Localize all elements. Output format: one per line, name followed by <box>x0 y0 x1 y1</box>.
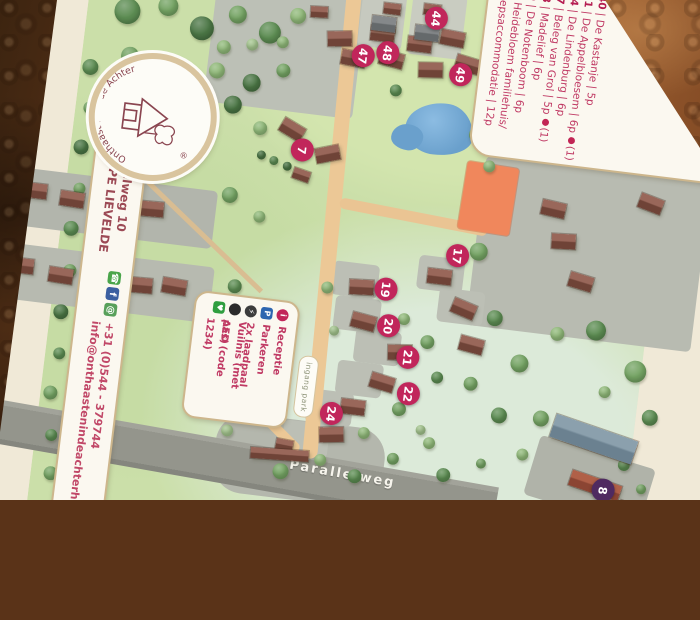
house-icon <box>340 398 366 416</box>
parking-icon: P <box>260 307 273 320</box>
house-icon <box>139 200 164 217</box>
house-icon <box>551 233 576 249</box>
ev-charger-icon: ⚡ <box>244 305 257 318</box>
facebook-icon: f <box>105 287 119 301</box>
info-icon: i <box>276 309 289 322</box>
house-icon <box>617 500 650 522</box>
house-icon <box>319 427 343 442</box>
phone-icon: ☎ <box>107 271 121 285</box>
house-icon <box>349 279 374 295</box>
house-icon <box>311 6 329 18</box>
tree-icon <box>268 155 278 165</box>
trash-icon <box>228 303 241 316</box>
house-icon <box>383 2 401 15</box>
entrance-label: ingang park <box>298 361 313 412</box>
house-icon <box>418 62 442 77</box>
facilities-legend-lines: iReceptiePParkeren⚡2x laadpaalVuilnis (m… <box>193 300 292 418</box>
accommodations-legend-lines: 40 | De Kastanje | 5p41 | De Appelbloese… <box>432 0 609 212</box>
house-icon <box>371 15 397 33</box>
pet-icon <box>542 118 550 126</box>
logo-sketch: Onthaast'n in' de Achterhoek ® <box>95 59 211 175</box>
tree-icon <box>256 149 266 159</box>
house-icon <box>427 268 453 286</box>
tree-icon <box>282 161 292 171</box>
aed-icon: ♥ <box>212 301 225 314</box>
registered-mark: ® <box>179 150 188 161</box>
tree-icon <box>641 409 659 427</box>
email-icon: @ <box>103 303 117 317</box>
facility-legend-item: ♥AED (code 1234) <box>199 301 228 410</box>
map-world: Parallelweg 4447484971719202122248 ingan… <box>0 0 700 541</box>
house-icon <box>328 31 352 46</box>
pet-icon <box>568 137 576 145</box>
park-map-card: Parallelweg 4447484971719202122248 ingan… <box>0 0 700 500</box>
